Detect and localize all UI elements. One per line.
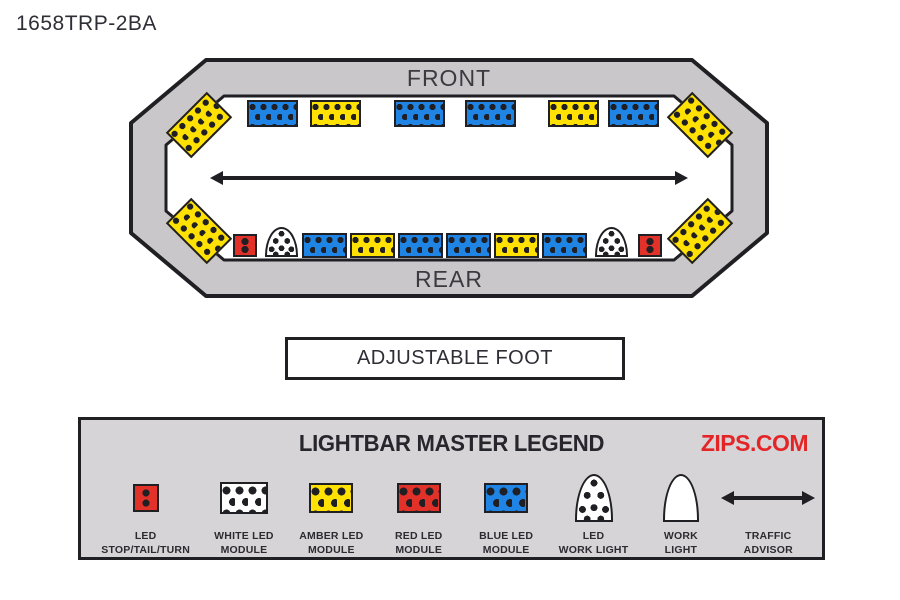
- legend-item-work-light: WORKLIGHT: [637, 472, 724, 557]
- legend-icon-slot: [309, 472, 353, 524]
- legend-item-label: AMBER LEDMODULE: [299, 530, 363, 557]
- led-work-light-icon: [575, 474, 613, 522]
- legend-icon-slot: [575, 472, 613, 524]
- front-amber-led-module-2: [548, 100, 599, 127]
- legend-item-led-work-light: LEDWORK LIGHT: [550, 472, 637, 557]
- rear-amber-led-module-1: [350, 233, 395, 258]
- legend-item-label: TRAFFICADVISOR: [744, 530, 793, 557]
- amber-led-module-icon: [309, 483, 353, 513]
- legend-item-blue-led-module: BLUE LEDMODULE: [462, 472, 549, 557]
- lightbar-master-legend: LIGHTBAR MASTER LEGEND ZIPS.COM LEDSTOP/…: [78, 417, 825, 560]
- legend-icon-slot: [733, 472, 803, 524]
- rear-blue-led-module-2: [398, 233, 443, 258]
- lightbar-diagram-page: 1658TRP-2BA FRONT REAR ADJUSTABLE FOOT L…: [0, 0, 900, 600]
- front-amber-led-module-1: [310, 100, 361, 127]
- front-blue-led-module-4: [608, 100, 659, 127]
- adjustable-foot-label: ADJUSTABLE FOOT: [357, 347, 553, 370]
- work-light-icon: [663, 474, 699, 522]
- rear-blue-led-module-3: [446, 233, 491, 258]
- traffic-advisor-arrow: [222, 176, 676, 180]
- model-number: 1658TRP-2BA: [16, 12, 157, 36]
- rear-amber-led-module-2: [494, 233, 539, 258]
- legend-item-label: WORKLIGHT: [664, 530, 698, 557]
- front-blue-led-module-3: [465, 100, 516, 127]
- traffic-advisor-icon: [733, 496, 803, 500]
- legend-item-label: BLUE LEDMODULE: [479, 530, 533, 557]
- legend-item-label: LEDWORK LIGHT: [559, 530, 629, 557]
- white-led-module-icon: [220, 482, 268, 514]
- legend-header: LIGHTBAR MASTER LEGEND ZIPS.COM: [81, 430, 822, 470]
- lightbar-top-view-diagram: FRONT REAR: [128, 57, 770, 299]
- legend-items-row: LEDSTOP/TAIL/TURNWHITE LEDMODULEAMBER LE…: [81, 472, 822, 557]
- legend-item-traffic-advisor: TRAFFICADVISOR: [725, 472, 812, 557]
- front-blue-led-module-2: [394, 100, 445, 127]
- rear-label: REAR: [128, 266, 770, 293]
- rear-blue-led-module-1: [302, 233, 347, 258]
- rear-left-led-stop-tail-turn: [233, 234, 257, 257]
- red-led-module-icon: [397, 483, 441, 513]
- legend-item-amber-led-module: AMBER LEDMODULE: [288, 472, 375, 557]
- legend-item-led-stop-tail-turn: LEDSTOP/TAIL/TURN: [91, 472, 200, 557]
- legend-icon-slot: [484, 472, 528, 524]
- legend-item-label: WHITE LEDMODULE: [214, 530, 274, 557]
- legend-icon-slot: [220, 472, 268, 524]
- rear-right-led-stop-tail-turn: [638, 234, 662, 257]
- zips-logo: ZIPS.COM: [701, 430, 808, 457]
- legend-item-white-led-module: WHITE LEDMODULE: [200, 472, 287, 557]
- front-label: FRONT: [128, 65, 770, 92]
- legend-icon-slot: [397, 472, 441, 524]
- led-stop-tail-turn-icon: [133, 484, 159, 512]
- adjustable-foot-box: ADJUSTABLE FOOT: [285, 337, 625, 380]
- legend-item-red-led-module: RED LEDMODULE: [375, 472, 462, 557]
- front-blue-led-module-1: [247, 100, 298, 127]
- rear-blue-led-module-4: [542, 233, 587, 258]
- legend-icon-slot: [663, 472, 699, 524]
- legend-item-label: LEDSTOP/TAIL/TURN: [101, 530, 190, 557]
- legend-icon-slot: [133, 472, 159, 524]
- legend-item-label: RED LEDMODULE: [395, 530, 443, 557]
- blue-led-module-icon: [484, 483, 528, 513]
